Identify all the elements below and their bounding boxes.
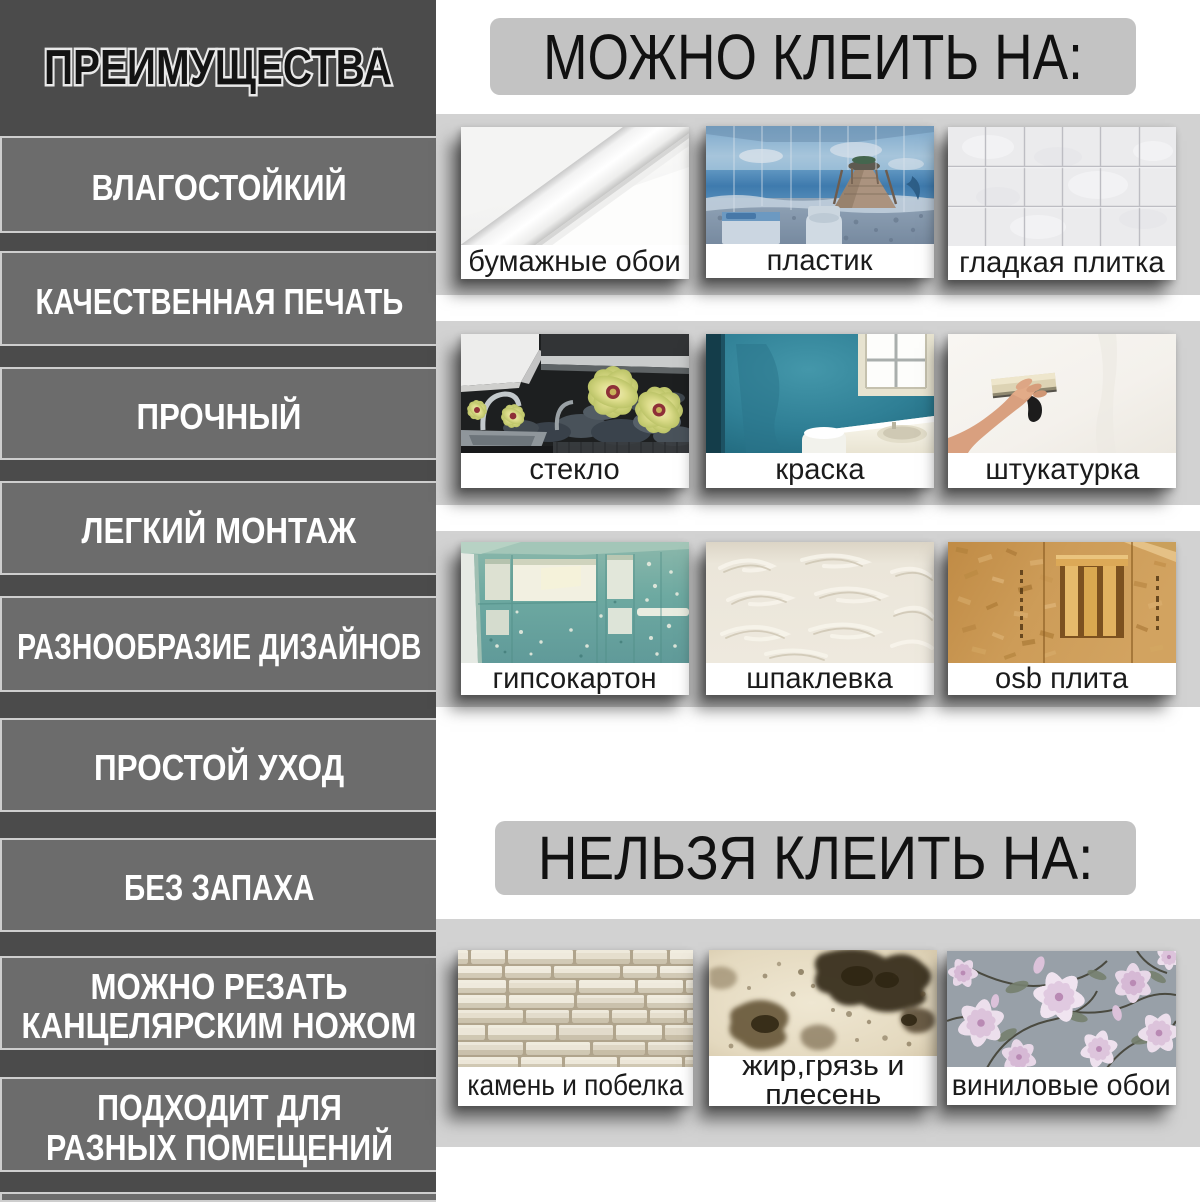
svg-text:ПРЕИМУЩЕСТВА: ПРЕИМУЩЕСТВА [44,41,392,95]
